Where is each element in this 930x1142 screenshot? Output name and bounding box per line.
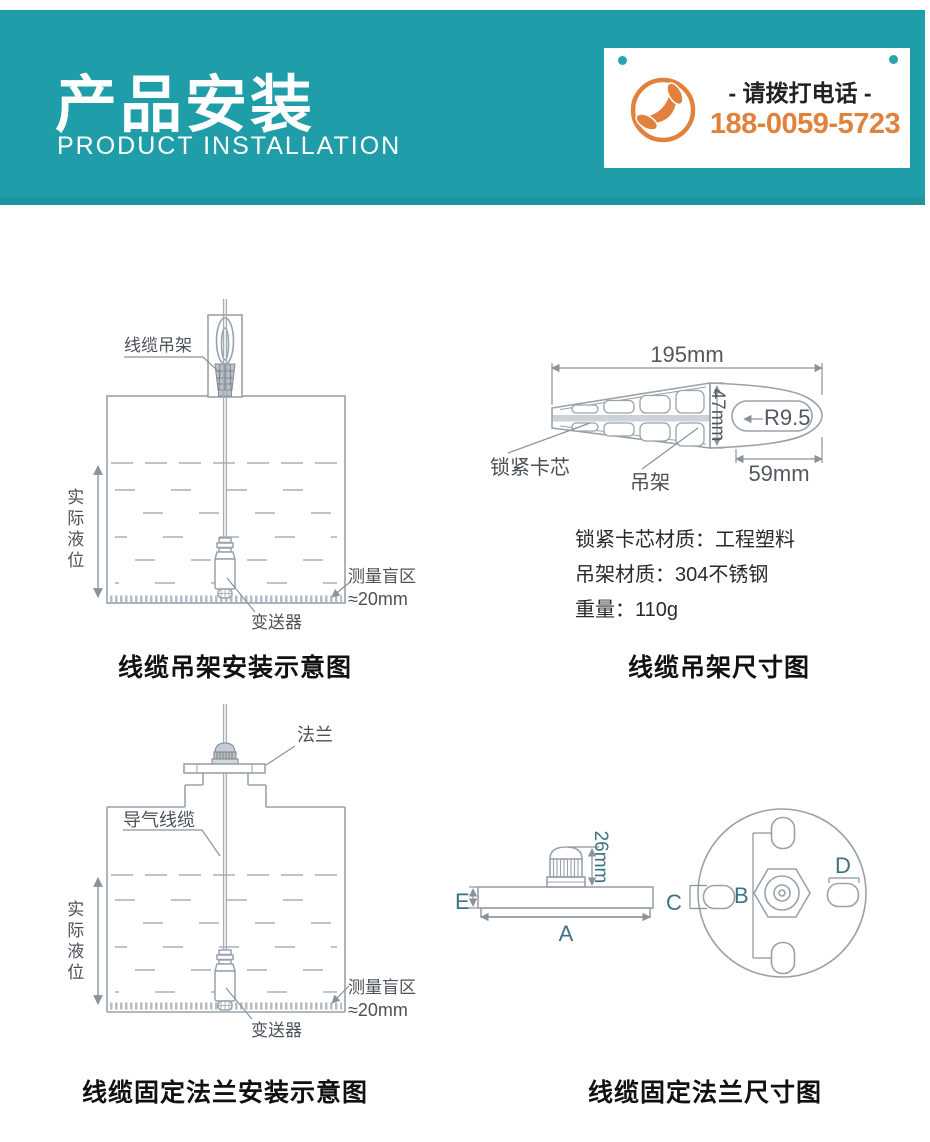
flange-top-view: [698, 809, 866, 977]
banner-shade: [0, 197, 925, 205]
hanger-label: 吊架: [630, 471, 670, 496]
flange-dims-diagram: E A 26mm C B D: [450, 795, 910, 1035]
lock-core-shape: [215, 364, 235, 396]
flange-install-caption: 线缆固定法兰安装示意图: [50, 1073, 400, 1109]
dim-r95: R9.5: [764, 405, 810, 431]
flange-dims-caption: 线缆固定法兰尺寸图: [530, 1073, 880, 1109]
transmitter-shape: [215, 950, 235, 1010]
dim-a-label: A: [535, 921, 597, 947]
hanger-install-diagram: 线缆吊架 实际液位 测量盲区 ≈20mm 变送器: [60, 295, 450, 695]
air-cable-label: 导气线缆: [123, 809, 195, 832]
transmitter-label: 变送器: [251, 612, 302, 633]
dim-c-label: C: [666, 890, 682, 916]
dim-47mm: 47mm: [710, 385, 728, 445]
blind-zone-label: 测量盲区: [348, 566, 416, 587]
flange-label: 法兰: [297, 724, 333, 747]
spec-lock-core-material: 锁紧卡芯材质：工程塑料: [575, 523, 795, 552]
spec-hanger-material: 吊架材质：304不锈钢: [575, 558, 768, 587]
page-subtitle: PRODUCT INSTALLATION: [57, 132, 401, 161]
flange-install-diagram: 法兰 导气线缆 实际液位 测量盲区 ≈20mm 变送器: [60, 700, 450, 1120]
dim-e-label: E: [455, 889, 470, 915]
cable-hanger-label: 线缆吊架: [124, 335, 192, 356]
cable-line: [224, 704, 227, 950]
spec-weight: 重量：110g: [575, 593, 678, 622]
hanger-install-caption: 线缆吊架安装示意图: [60, 648, 410, 684]
lock-core-label: 锁紧卡芯: [490, 456, 570, 481]
actual-level-label: 实际液位: [63, 900, 84, 984]
dim-b-label: B: [734, 883, 749, 909]
dim-59mm: 59mm: [736, 461, 822, 487]
dim-26mm-label: 26mm: [593, 827, 611, 887]
header-banner: 产品安装 PRODUCT INSTALLATION - 请拨打电话 - 188-…: [0, 10, 925, 205]
hanger-dims-diagram: 195mm 47mm R9.5 59mm 锁紧卡芯 吊架: [470, 335, 920, 495]
blind-zone-value: ≈20mm: [348, 588, 408, 611]
dim-195mm: 195mm: [627, 342, 747, 368]
transmitter-label: 变送器: [251, 1020, 302, 1041]
page-title: 产品安装: [55, 54, 315, 144]
phone-call-label: - 请拨打电话 -: [700, 74, 900, 108]
leader-lines: [123, 746, 349, 1019]
flange-side-view: [478, 847, 653, 917]
phone-number: 188-0059-5723: [702, 108, 908, 141]
blind-zone-value: ≈20mm: [348, 999, 408, 1022]
pin-dot-right: [889, 55, 898, 64]
actual-level-label: 实际液位: [63, 488, 84, 572]
pin-dot-left: [618, 56, 627, 65]
dim-d-label: D: [830, 853, 856, 879]
flange-install-drawing: [60, 700, 450, 1120]
hanger-dims-caption: 线缆吊架尺寸图: [544, 648, 894, 684]
phone-icon: [626, 72, 700, 146]
transmitter-shape: [215, 538, 235, 598]
blind-zone-label: 测量盲区: [348, 977, 416, 998]
page: 产品安装 PRODUCT INSTALLATION - 请拨打电话 - 188-…: [0, 0, 930, 1142]
cable-gland: [212, 743, 238, 764]
hanger-install-drawing: [60, 295, 450, 695]
phone-card: - 请拨打电话 - 188-0059-5723: [604, 48, 910, 168]
